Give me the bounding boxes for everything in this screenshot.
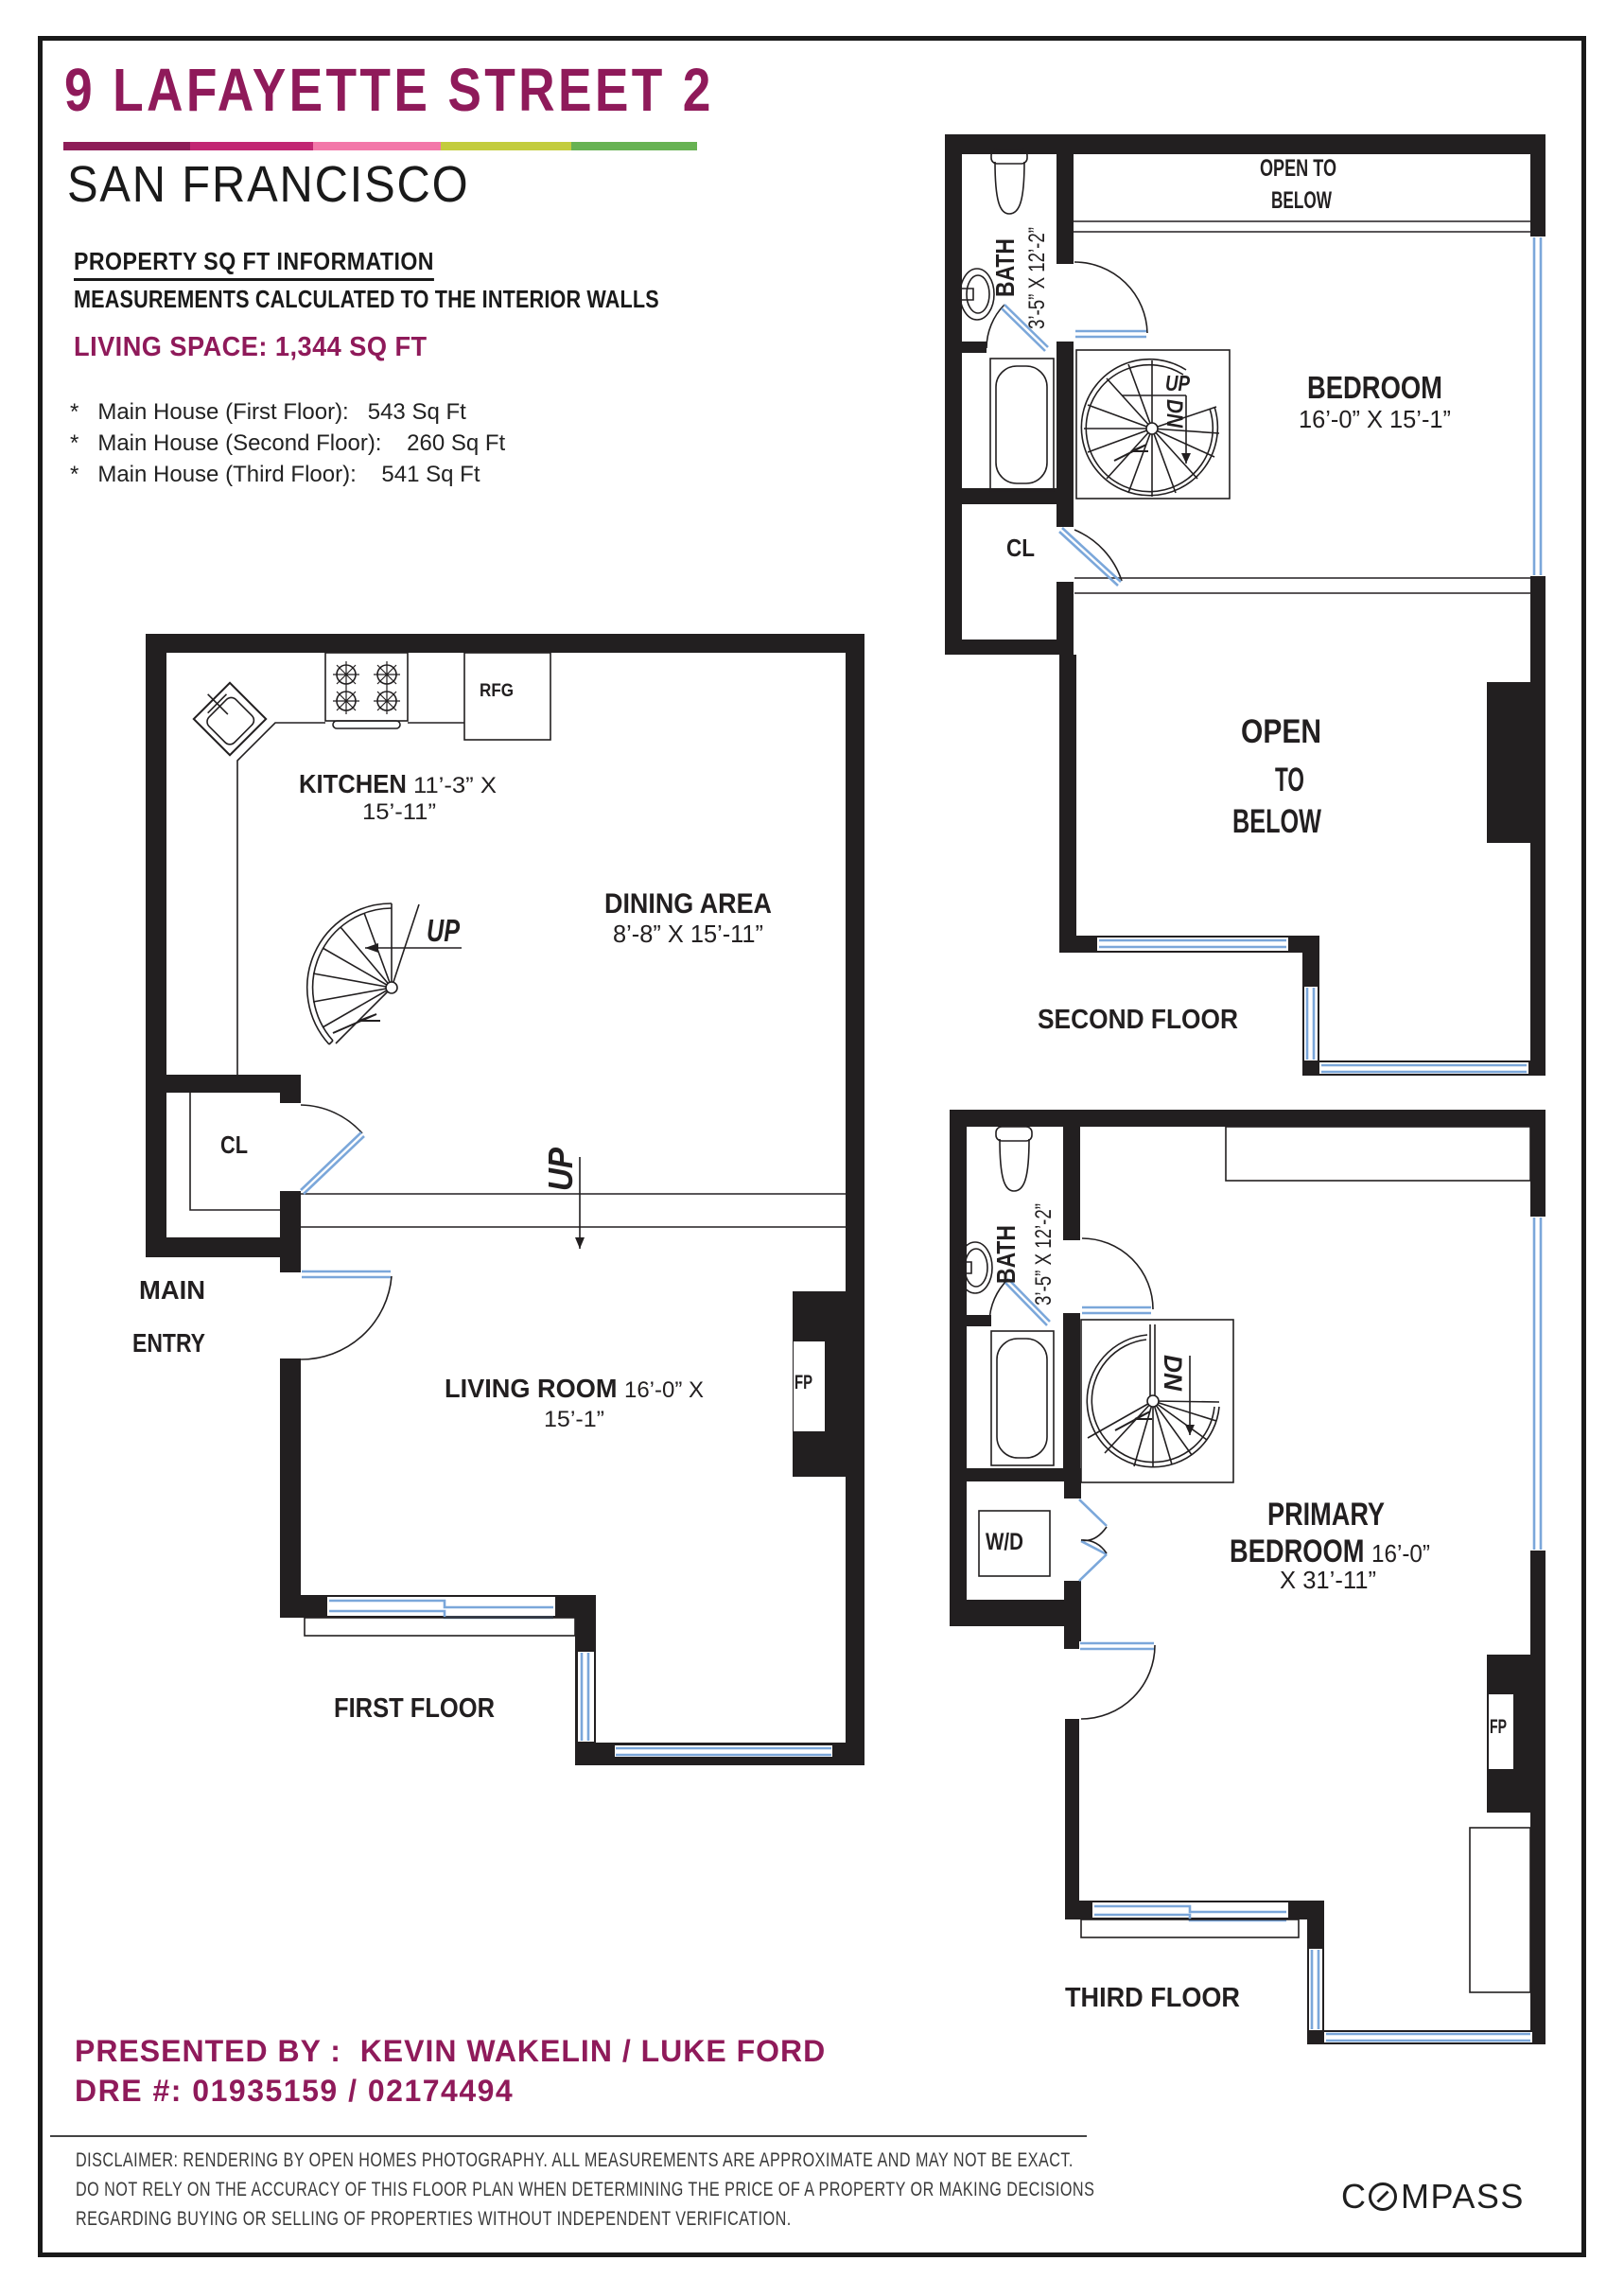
svg-text:BATH: BATH <box>990 238 1020 297</box>
svg-text:DINING AREA: DINING AREA <box>604 888 772 920</box>
svg-text:LIVING ROOM 16’-0” X: LIVING ROOM 16’-0” X <box>445 1374 704 1403</box>
svg-text:BEDROOM: BEDROOM <box>1307 370 1442 405</box>
svg-text:BELOW: BELOW <box>1271 187 1332 214</box>
svg-text:BATH: BATH <box>991 1225 1021 1284</box>
svg-text:3’-5” X 12’-2”: 3’-5” X 12’-2” <box>1024 227 1050 329</box>
svg-text:FP: FP <box>1490 1716 1507 1738</box>
svg-text:16’-0” X 15’-1”: 16’-0” X 15’-1” <box>1299 405 1451 433</box>
svg-text:15’-1”: 15’-1” <box>544 1407 604 1432</box>
svg-text:DN: DN <box>1161 399 1187 429</box>
svg-text:BELOW: BELOW <box>1232 803 1321 840</box>
svg-text:FIRST FLOOR: FIRST FLOOR <box>334 1693 495 1724</box>
svg-text:X 31’-11”: X 31’-11” <box>1280 1566 1376 1594</box>
svg-text:PRIMARY: PRIMARY <box>1267 1497 1385 1533</box>
svg-text:DN: DN <box>1159 1355 1187 1391</box>
svg-text:OPEN TO: OPEN TO <box>1260 155 1336 182</box>
svg-text:SECOND FLOOR: SECOND FLOOR <box>1038 1005 1238 1035</box>
svg-text:UP: UP <box>1165 371 1191 395</box>
svg-text:CL: CL <box>220 1130 248 1159</box>
svg-text:UP: UP <box>427 913 461 948</box>
svg-text:BEDROOM 16’-0”: BEDROOM 16’-0” <box>1230 1534 1430 1569</box>
svg-text:15’-11”: 15’-11” <box>362 799 436 825</box>
svg-text:W/D: W/D <box>986 1529 1023 1555</box>
svg-text:8’-8” X 15’-11”: 8’-8” X 15’-11” <box>613 920 763 948</box>
svg-text:FP: FP <box>795 1372 812 1393</box>
svg-text:OPEN: OPEN <box>1241 713 1321 750</box>
svg-text:TO: TO <box>1275 762 1304 798</box>
svg-text:UP: UP <box>541 1147 580 1191</box>
svg-text:THIRD FLOOR: THIRD FLOOR <box>1065 1983 1240 2013</box>
svg-text:3’-5” X 12’-2”: 3’-5” X 12’-2” <box>1031 1203 1056 1306</box>
svg-text:MAIN: MAIN <box>139 1275 205 1305</box>
svg-text:ENTRY: ENTRY <box>132 1328 205 1358</box>
svg-text:KITCHEN 11’-3” X: KITCHEN 11’-3” X <box>299 769 497 798</box>
svg-text:RFG: RFG <box>480 681 514 701</box>
svg-text:CL: CL <box>1006 534 1035 562</box>
